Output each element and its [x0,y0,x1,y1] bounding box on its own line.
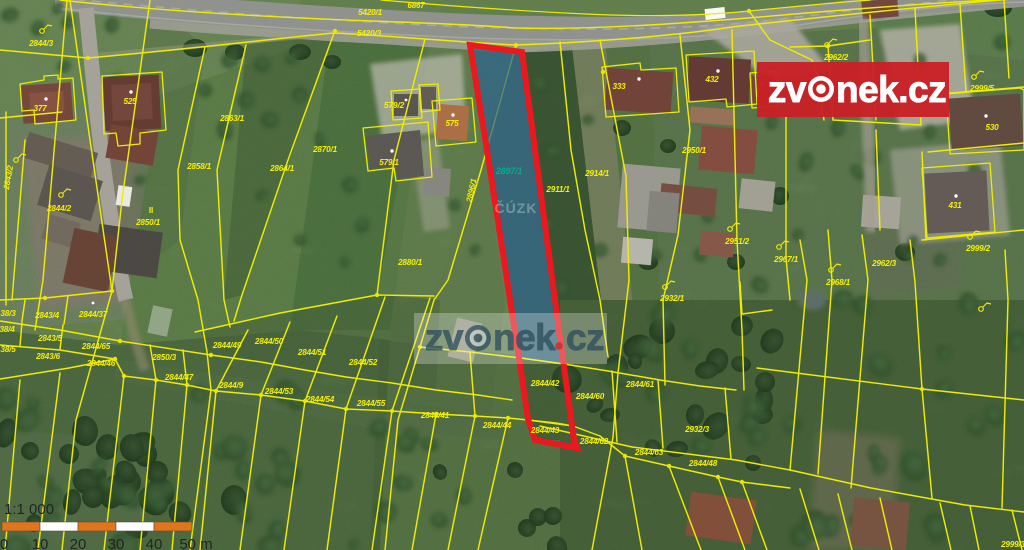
svg-text:50 m: 50 m [179,536,212,550]
svg-text:2999/5: 2999/5 [969,84,994,93]
svg-text:2967/1: 2967/1 [773,255,798,264]
svg-text:2914/1: 2914/1 [584,169,609,178]
svg-text:ČÚZK: ČÚZK [495,199,538,216]
svg-text:2843/6: 2843/6 [35,352,60,361]
svg-text:2850/3: 2850/3 [151,353,176,362]
svg-text:333: 333 [612,82,626,91]
svg-text:1:1 000: 1:1 000 [4,501,54,518]
svg-text:2844/49: 2844/49 [212,341,242,350]
svg-text:2844/63: 2844/63 [634,448,664,457]
svg-text:2843/5: 2843/5 [37,334,62,343]
svg-text:2844/3: 2844/3 [28,39,53,48]
svg-text:5420/3: 5420/3 [357,29,381,38]
svg-text:2932/3: 2932/3 [684,425,709,434]
svg-text:38/3: 38/3 [0,309,16,318]
svg-text:2844/61: 2844/61 [625,380,655,389]
svg-text:38/4: 38/4 [0,325,15,334]
svg-text:2999/3: 2999/3 [1000,540,1024,549]
svg-text:2844/42: 2844/42 [530,379,560,388]
svg-text:6867: 6867 [408,1,426,10]
svg-text:2844/50: 2844/50 [254,337,284,346]
svg-text:2844/41: 2844/41 [420,411,450,420]
svg-text:2844/44: 2844/44 [482,421,512,430]
svg-text:nek: nek [493,317,556,358]
svg-text:zv: zv [768,69,807,110]
svg-text:2844/60: 2844/60 [575,392,605,401]
svg-text:2951/2: 2951/2 [724,237,749,246]
svg-text:431: 431 [947,201,962,210]
svg-text:530: 530 [985,123,999,132]
svg-text:2863/1: 2863/1 [219,114,244,123]
svg-text:2844/48: 2844/48 [688,459,718,468]
svg-text:2844/53: 2844/53 [264,387,294,396]
svg-text:2844/43: 2844/43 [530,426,560,435]
svg-text:2850/1: 2850/1 [135,218,160,227]
svg-text:2962/3: 2962/3 [871,259,896,268]
svg-text:575: 575 [445,119,459,128]
svg-text:10: 10 [32,536,49,550]
svg-text:2968/1: 2968/1 [825,278,850,287]
svg-text:40: 40 [146,536,163,550]
svg-text:2844/62: 2844/62 [579,437,609,446]
svg-text:2844/54: 2844/54 [305,395,335,404]
svg-text:2864/1: 2864/1 [269,164,294,173]
svg-text:2950/1: 2950/1 [681,146,706,155]
svg-text:2844/52: 2844/52 [348,358,378,367]
svg-text:zv: zv [425,317,464,358]
svg-text:2844/9: 2844/9 [218,381,243,390]
svg-text:cz: cz [566,317,604,358]
svg-text:2897/1: 2897/1 [495,166,523,176]
svg-text:2844/51: 2844/51 [297,348,327,357]
svg-text:2858/1: 2858/1 [186,162,211,171]
svg-text:2999/2: 2999/2 [965,244,990,253]
svg-text:2844/46: 2844/46 [86,359,116,368]
svg-text:579/2: 579/2 [384,100,405,110]
svg-text:432: 432 [704,75,719,84]
svg-text:0: 0 [0,536,8,550]
svg-text:525: 525 [123,97,137,106]
svg-text:2844/37: 2844/37 [78,310,108,319]
svg-text:2962/2: 2962/2 [823,53,848,62]
svg-text:30: 30 [108,536,125,550]
svg-text:5420/1: 5420/1 [358,8,382,17]
svg-text:377: 377 [33,104,47,113]
svg-text:2932/1: 2932/1 [659,294,684,303]
svg-text:2844/65: 2844/65 [81,342,111,351]
svg-text:2844/47: 2844/47 [164,373,194,382]
svg-text:2880/1: 2880/1 [397,258,422,267]
svg-text:2870/1: 2870/1 [312,145,337,154]
svg-text:2911/1: 2911/1 [545,185,570,194]
svg-text:38/5: 38/5 [0,345,16,354]
svg-text:20: 20 [70,536,87,550]
svg-text:II: II [149,206,153,215]
svg-text:nek.cz: nek.cz [836,69,946,110]
svg-text:2843/4: 2843/4 [34,311,59,320]
svg-text:2844/55: 2844/55 [356,399,386,408]
svg-text:579/1: 579/1 [379,158,399,167]
svg-text:2844/2: 2844/2 [46,204,71,213]
